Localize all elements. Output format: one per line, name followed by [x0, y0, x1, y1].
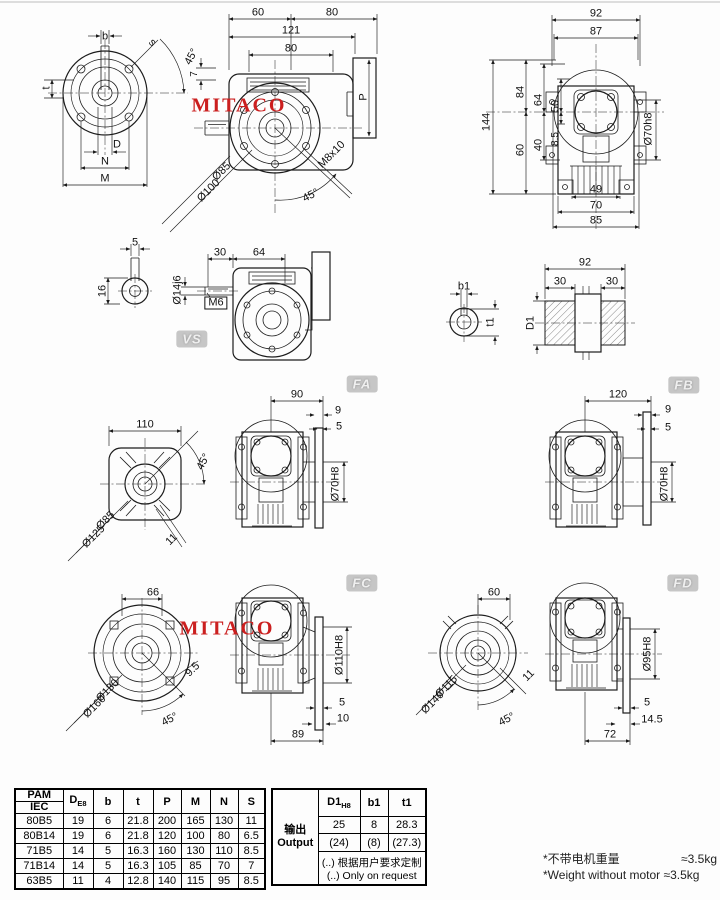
cell: 14 — [63, 844, 93, 859]
dim-label: 9 — [335, 406, 341, 417]
view-fa — [68, 396, 348, 561]
view-fb — [545, 396, 676, 527]
cell: 85 — [181, 859, 210, 874]
cell: 21.8 — [123, 829, 153, 844]
dim-label: D1 — [526, 316, 537, 330]
weight-note-cn: *不带电机重量 ≈3.5kg — [543, 851, 717, 867]
cell: 8.5 — [238, 844, 265, 859]
dim-label: 70 — [590, 201, 602, 212]
table-row: 71B14 14 5 16.3 105 85 70 7 — [15, 859, 265, 874]
dim-label: 40 — [534, 139, 545, 151]
col-header-p: P — [153, 789, 181, 814]
view-gearbox-front — [162, 14, 377, 232]
cell: 70 — [210, 859, 238, 874]
dim-label: 9 — [665, 405, 671, 416]
cell: 21.8 — [123, 814, 153, 829]
col-header-pam-iec: PAM IEC — [15, 789, 63, 814]
dim-label: 89 — [292, 730, 304, 741]
col-header-t: t — [123, 789, 153, 814]
view-fd — [416, 583, 662, 745]
dim-label: 10 — [337, 714, 349, 725]
dim-label: 50 — [551, 100, 562, 112]
cell: 95 — [210, 874, 238, 890]
dim-label: b — [102, 32, 108, 43]
cell: 11 — [63, 874, 93, 890]
badge-fc: FC — [346, 575, 377, 592]
cell: 19 — [63, 814, 93, 829]
col-header-s: S — [238, 789, 265, 814]
col-header-n: N — [210, 789, 238, 814]
engineering-drawing-canvas — [0, 0, 720, 900]
dim-label: 92 — [579, 258, 591, 269]
dim-label: 80 — [326, 8, 338, 19]
dim-label: 7 — [190, 71, 200, 77]
dim-label: 90 — [291, 390, 303, 401]
dim-label: N — [101, 157, 109, 168]
cell: 6 — [93, 829, 123, 844]
cell: 11 — [238, 814, 265, 829]
cell: (24) — [318, 834, 360, 852]
dim-label: Ø110H8 — [335, 635, 346, 675]
dim-label: M — [100, 174, 109, 185]
dim-label: 49 — [590, 185, 602, 196]
dimension-tables: PAM IEC DE8 b t P M N S 80B5 19 6 21.8 2… — [14, 788, 427, 890]
dim-label: D — [113, 140, 121, 151]
dim-label: 60 — [252, 8, 264, 19]
cell: 7 — [238, 859, 265, 874]
cell: 5 — [93, 844, 123, 859]
table-row: 63B5 11 4 12.8 140 115 95 8.5 — [15, 874, 265, 890]
cell: 12.8 — [123, 874, 153, 890]
cell: 115 — [181, 874, 210, 890]
cell: 130 — [210, 814, 238, 829]
note-en: (..) Only on request — [319, 870, 426, 884]
cell: 160 — [153, 844, 181, 859]
cell-model: 71B14 — [15, 859, 63, 874]
gearbox-dimension-sheet: MITACO MITACO VS FA FB FC FD b s 45° t D… — [0, 0, 720, 900]
cell: (8) — [360, 834, 388, 852]
weight-note-en: *Weight without motor ≈3.5kg — [543, 867, 717, 883]
cell: 16.3 — [123, 859, 153, 874]
badge-fb: FB — [668, 377, 699, 394]
dim-label: 121 — [282, 26, 300, 37]
brand-watermark: MITACO — [192, 95, 287, 118]
dim-label: 5 — [132, 238, 138, 249]
cell: 120 — [153, 829, 181, 844]
dim-label: t1 — [486, 317, 497, 326]
output-label-cn: 输出 — [273, 824, 318, 837]
cell: 16.3 — [123, 844, 153, 859]
table-row: 80B5 19 6 21.8 200 165 130 11 — [15, 814, 265, 829]
col-header-d: DE8 — [63, 789, 93, 814]
cell: 130 — [181, 844, 210, 859]
badge-fa: FA — [347, 376, 378, 393]
dim-label: t — [42, 86, 53, 89]
col-header-d1: D1H8 — [318, 789, 360, 816]
cell: 8.5 — [238, 874, 265, 890]
dim-label: 110 — [136, 420, 154, 431]
header-d1-sub: H8 — [341, 801, 351, 810]
cell: 110 — [210, 844, 238, 859]
badge-fd: FD — [667, 575, 698, 592]
header-d1: D1 — [327, 796, 341, 808]
table-row: 80B14 19 6 21.8 120 100 80 6.5 — [15, 829, 265, 844]
cell: 14 — [63, 859, 93, 874]
dim-label: 30 — [214, 248, 226, 259]
weight-note-cn-value: ≈3.5kg — [681, 851, 717, 867]
cell-model: 63B5 — [15, 874, 63, 890]
dim-label: Ø14j6 — [173, 275, 184, 304]
dim-label: 64 — [534, 94, 545, 106]
cell-model: 80B14 — [15, 829, 63, 844]
on-request-note: (..) 根据用户要求定制 (..) Only on request — [318, 851, 426, 885]
cell: 25 — [318, 816, 360, 834]
dim-label: 72 — [604, 730, 616, 741]
col-header-t1: t1 — [388, 789, 426, 816]
dim-label: 5 — [336, 422, 342, 433]
view-fc — [66, 585, 352, 745]
header-d-sub: E8 — [77, 800, 86, 809]
cell-model: 71B5 — [15, 844, 63, 859]
dim-label: 80 — [285, 44, 297, 55]
dim-label: 92 — [590, 9, 602, 20]
dim-label: 5 — [339, 698, 345, 709]
pam-iec-table: PAM IEC DE8 b t P M N S 80B5 19 6 21.8 2… — [14, 788, 266, 890]
cell: 100 — [181, 829, 210, 844]
cell: 4 — [93, 874, 123, 890]
dim-label: 84 — [516, 86, 527, 98]
dim-label: 87 — [590, 27, 602, 38]
cell: 80 — [210, 829, 238, 844]
cell-model: 80B5 — [15, 814, 63, 829]
dim-label: 16 — [98, 285, 109, 297]
dim-label: b1 — [458, 282, 470, 293]
cell: 140 — [153, 874, 181, 890]
dim-label: 66 — [147, 588, 159, 599]
table-row: 71B5 14 5 16.3 160 130 110 8.5 — [15, 844, 265, 859]
cell: 6.5 — [238, 829, 265, 844]
output-label-en: Output — [273, 837, 318, 850]
dim-label: Ø70H8 — [660, 467, 671, 502]
dim-label: 14.5 — [641, 715, 662, 726]
view-gearbox-rear — [486, 15, 664, 230]
dim-label: 30 — [554, 277, 566, 288]
cell: 28.3 — [388, 816, 426, 834]
dim-label: 64 — [253, 248, 265, 259]
cell: 165 — [181, 814, 210, 829]
dim-label: Ø70h8 — [644, 112, 655, 145]
header-iec: IEC — [16, 802, 63, 813]
cell: (27.3) — [388, 834, 426, 852]
cell: 105 — [153, 859, 181, 874]
col-header-m: M — [181, 789, 210, 814]
dim-label: 120 — [609, 390, 627, 401]
view-input-flange-front — [44, 30, 188, 187]
cell: 5 — [93, 859, 123, 874]
cell: 19 — [63, 829, 93, 844]
badge-vs: VS — [176, 331, 207, 348]
dim-label: 60 — [488, 588, 500, 599]
dim-label: 144 — [482, 113, 493, 131]
dim-label: P — [359, 93, 370, 100]
dim-label: 85 — [590, 216, 602, 227]
col-header-b1: b1 — [360, 789, 388, 816]
dim-label: Ø95H8 — [643, 637, 654, 672]
note-cn: (..) 根据用户要求定制 — [319, 857, 426, 871]
dim-label: 60 — [516, 144, 527, 156]
weight-notes: *不带电机重量 ≈3.5kg *Weight without motor ≈3.… — [543, 851, 717, 883]
weight-note-cn-label: *不带电机重量 — [543, 851, 620, 867]
cell: 6 — [93, 814, 123, 829]
brand-watermark: MITACO — [180, 618, 275, 641]
col-header-b: b — [93, 789, 123, 814]
thread-callout: M6 — [204, 297, 227, 310]
output-table: 输出 Output D1H8 b1 t1 25 8 28.3 (24) (8) … — [271, 788, 427, 886]
dim-label: Ø70H8 — [331, 467, 342, 502]
cell: 8 — [360, 816, 388, 834]
dim-label: 5 — [644, 698, 650, 709]
dim-label: 5 — [665, 423, 671, 434]
dim-label: 30 — [606, 277, 618, 288]
dim-label: 8.5 — [551, 132, 561, 146]
output-label-cell: 输出 Output — [272, 789, 318, 885]
cell: 200 — [153, 814, 181, 829]
